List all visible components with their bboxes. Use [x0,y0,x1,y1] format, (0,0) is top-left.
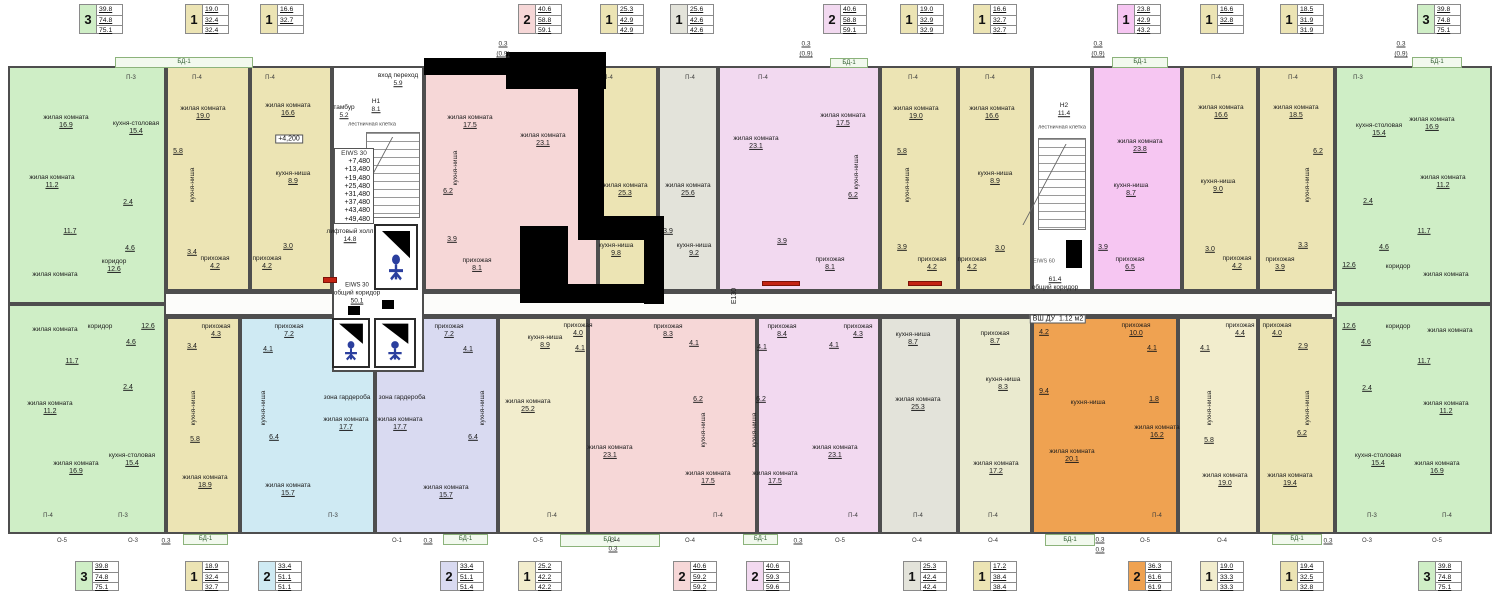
stat-values: 33.451.151.1 [275,562,301,590]
room-label: жилая комната25.6 [665,182,710,198]
stairs-left [366,132,420,218]
stat-area-value: 32.5 [1298,573,1323,584]
apartment-stat-card: 117.238.438.4 [973,561,1017,591]
stat-area-value: 32.7 [991,26,1016,36]
h1-label: H1 8.1 [371,98,380,114]
room-label: 4.1 [689,340,699,348]
room-label: 3.0 [283,243,293,251]
tambour-label: тамбур 5.2 [333,104,354,120]
room-label: 5.8 [1204,437,1214,445]
room-label: 9.4 [1039,388,1049,396]
room-label: жилая комната11.2 [27,400,72,416]
room-label: жилая комната17.5 [685,470,730,486]
elevation-level: +43,480 [338,207,370,215]
room-label: жилая комната15.7 [423,484,468,500]
stat-area-value: 74.8 [93,573,118,584]
dimension-label: (0.9) [1394,51,1407,58]
room-label: 3.9 [1098,244,1108,252]
room-label: 4.6 [125,245,135,253]
room-label: 3.4 [187,343,197,351]
dimension-label: 0.3 [793,538,802,545]
room-label: жилая комната [1423,271,1468,279]
apartment-stat-card: 240.659.359.6 [746,561,790,591]
stat-room-count: 1 [974,5,990,33]
staircase-right-label: лестничная клетка [1038,125,1086,132]
room-label: 3.0 [1205,246,1215,254]
room-label: жилая комната18.9 [182,474,227,490]
room-label: 3.9 [447,236,457,244]
facade-marker: П-4 [1442,513,1452,519]
room-label: 2.4 [1363,198,1373,206]
stat-room-count: 1 [186,5,202,33]
room-label: прихожая4.2 [918,256,947,272]
elevator-icon [374,318,416,368]
level-mark: +4,200 [275,135,303,144]
facade-marker: П-3 [118,513,128,519]
room-label: прихожая4.0 [1263,322,1292,338]
room-label: 12.6 [1342,323,1356,331]
stat-values: 40.658.859.1 [840,5,866,33]
room-label: жилая комната [32,271,77,279]
corridor-right-label: 61.4 общий коридор [1032,276,1079,292]
facade-marker: П-4 [913,513,923,519]
room-label: коридор [88,323,113,331]
stat-area-value: 32.9 [918,26,943,36]
apartment-3k-bottom-left [8,304,166,534]
facade-marker: О-5 [1432,538,1442,544]
facade-marker: П-4 [908,75,918,81]
apartment-stat-card: 339.874.875.1 [75,561,119,591]
stat-area-value: 43.2 [1135,26,1160,36]
stat-area-value: 75.1 [93,583,118,593]
stat-values: 36.361.661.9 [1145,562,1171,590]
stat-room-count: 3 [80,5,96,33]
room-label: жилая комната16.9 [1414,460,1459,476]
floor-plan-page: вход переход 5.9 тамбур 5.2 H1 8.1 лестн… [0,0,1500,597]
facade-marker: П-4 [1288,75,1298,81]
stat-area-value: 59.2 [691,573,716,584]
room-label: жилая комната16.9 [53,460,98,476]
apartment-1k-189-bottom [166,317,240,534]
apartment-stat-card: 116.632.732.7 [973,4,1017,34]
room-label: 6.2 [848,192,858,200]
facade-marker: О-3 [1362,538,1372,544]
stat-area-value: 31.9 [1298,16,1323,27]
stat-values: 39.874.875.1 [1434,5,1460,33]
stat-values: 19.432.532.8 [1297,562,1323,590]
stat-area-value: 59.1 [841,26,866,36]
corridor-red-mark [908,281,942,286]
balcony: БД-1 [1412,57,1462,68]
apartment-stat-card: 118.531.931.9 [1280,4,1324,34]
room-label: кухня-ниша8.3 [986,376,1021,392]
balcony: БД-1 [1112,57,1168,68]
room-label: жилая комната16.9 [43,114,88,130]
facade-marker: П-4 [43,513,53,519]
room-label: кухня-ниша [751,413,759,448]
dimension-label: 0.3 [1095,537,1104,544]
facade-marker: О-5 [835,538,845,544]
facade-marker: О-4 [685,538,695,544]
stat-area-value: 40.6 [536,5,561,16]
room-label: жилая комната17.2 [973,460,1018,476]
stat-room-count: 1 [671,5,687,33]
apartment-stat-card: 119.033.333.3 [1200,561,1244,591]
room-label: прихожая4.2 [958,256,987,272]
room-label: 2.9 [1298,343,1308,351]
dimension-label: 0.9 [1095,547,1104,554]
stat-room-count: 1 [261,5,277,33]
room-label: 3.0 [995,245,1005,253]
facade-marker: О-4 [912,538,922,544]
stat-area-value: 51.4 [458,583,483,593]
selected-apartment-highlight [520,284,664,303]
balcony: БД-1 [1045,534,1095,546]
facade-marker: П-3 [126,75,136,81]
facade-marker: П-4 [265,75,275,81]
stat-room-count: 2 [747,562,763,590]
staircase-left-label: лестничная клетка [348,122,396,129]
floor-plan: вход переход 5.9 тамбур 5.2 H1 8.1 лестн… [0,0,1500,597]
stat-values: 16.632.8 [1217,5,1243,33]
stat-area-value: 42.6 [688,26,713,36]
stat-area-value: 39.8 [93,562,118,573]
apartment-stat-card: 240.659.259.2 [673,561,717,591]
facade-marker: П-3 [1353,75,1363,81]
stat-area-value: 75.1 [97,26,122,36]
stat-room-count: 1 [1118,5,1134,33]
elevation-level: +31,480 [338,191,370,199]
room-label: прихожая8.3 [654,323,683,339]
room-label: прихожая4.2 [253,255,282,271]
stat-room-count: 1 [1201,562,1217,590]
stat-area-value: 42.4 [921,583,946,593]
room-label: жилая комната19.0 [180,105,225,121]
elevation-level: +37,480 [338,199,370,207]
dimension-label: (0.9) [1091,51,1104,58]
stat-room-count: 1 [974,562,990,590]
room-label: 11.7 [1417,358,1430,366]
room-label: жилая комната16.6 [265,102,310,118]
stat-area-value: 38.4 [991,573,1016,584]
facade-marker: П-3 [1367,513,1377,519]
stat-area-value: 32.4 [203,16,228,27]
stat-values: 18.932.432.7 [202,562,228,590]
room-label: жилая комната17.5 [752,470,797,486]
balcony: БД-1 [443,534,488,545]
dimension-label: 0.3 [1396,41,1405,48]
stairs-right [1038,138,1086,230]
room-label: 4.1 [575,345,585,353]
balcony: БД-1 [1272,534,1322,545]
stat-area-value: 58.8 [841,16,866,27]
stat-area-value: 19.0 [918,5,943,16]
balcony: БД-1 [183,534,228,545]
room-label: жилая комната25.3 [602,182,647,198]
vsh-du-label: ВШ ДУ 1.12 м2 [1030,315,1086,324]
stat-area-value: 75.1 [1436,583,1461,593]
room-label: жилая комната [1427,327,1472,335]
stat-area-value [278,26,303,33]
stat-area-value: 32.4 [203,573,228,584]
room-label: кухня-столовая15.4 [1355,452,1401,468]
room-label: 2.4 [1362,385,1372,393]
room-label: зона гардероба [379,394,426,402]
elevation-levels-title: EIWS 30 [338,150,370,158]
stat-values: 39.874.875.1 [92,562,118,590]
apartment-stat-card: 118.932.432.7 [185,561,229,591]
stat-area-value: 59.6 [764,583,789,593]
stat-area-value: 74.8 [1435,16,1460,27]
apartment-stat-card: 240.658.859.1 [823,4,867,34]
apartment-1k-194-bottom [1258,317,1335,534]
stat-room-count: 2 [1129,562,1145,590]
facade-marker: П-4 [848,513,858,519]
room-label: прихожая10.0 [1122,322,1151,338]
room-label: 2.4 [123,384,133,392]
apartment-stat-card: 233.451.151.4 [440,561,484,591]
e130-label: E130 [731,288,739,304]
stat-area-value: 16.6 [991,5,1016,16]
room-label: 4.6 [1379,244,1389,252]
stat-room-count: 2 [824,5,840,33]
stat-room-count: 2 [674,562,690,590]
room-label: жилая комната25.2 [505,398,550,414]
room-label: 4.1 [1200,345,1210,353]
elevation-level: +7,480 [338,158,370,166]
stat-area-value: 39.8 [1436,562,1461,573]
stat-values: 25.342.942.9 [617,5,643,33]
entry-passage-label: вход переход 5.9 [378,72,418,88]
stat-area-value: 51.1 [458,573,483,584]
stat-area-value: 19.0 [1218,562,1243,573]
room-label: прихожая3.9 [1266,256,1295,272]
stat-area-value: 40.6 [691,562,716,573]
apartment-3k-top-right [1335,66,1492,304]
room-label: 4.6 [1361,339,1371,347]
room-label: кухня-ниша8.9 [978,170,1013,186]
apartment-stat-card: 116.632.7 [260,4,304,34]
stat-area-value: 36.3 [1146,562,1171,573]
stat-area-value: 61.9 [1146,583,1171,593]
selected-apartment-highlight [348,306,360,315]
room-label: жилая комната17.5 [820,112,865,128]
room-label: коридор [1386,323,1411,331]
stat-area-value: 59.2 [691,583,716,593]
room-label: 4.1 [463,346,473,354]
facade-marker: О-5 [57,538,67,544]
room-label: жилая комната23.8 [1117,138,1162,154]
facade-marker: О-4 [988,538,998,544]
lift-hall-label: лифтовый холл 14.8 [327,228,374,244]
stat-area-value: 74.8 [1436,573,1461,584]
apartment-stat-card: 236.361.661.9 [1128,561,1172,591]
room-label: жилая комната11.2 [1423,400,1468,416]
room-label: кухня-ниша [1071,399,1106,407]
stat-area-value: 42.2 [536,583,561,593]
apartment-2k-violet-bottom [757,317,880,534]
room-label: 3.9 [777,238,787,246]
room-label: зона гардероба [324,394,371,402]
room-label: кухня-ниша [189,168,197,203]
stat-area-value: 32.8 [1298,583,1323,593]
facade-marker: О-5 [1140,538,1150,544]
room-label: кухня-ниша [479,391,487,426]
apartment-1k-253-bottom [880,317,958,534]
elevation-level: +19,480 [338,175,370,183]
apartment-stat-card: 240.658.859.1 [518,4,562,34]
room-label: 5.8 [897,148,907,156]
corridor-red-mark [762,281,800,286]
facade-marker: П-4 [547,513,557,519]
stat-area-value: 40.6 [764,562,789,573]
apartment-stat-card: 125.342.442.4 [903,561,947,591]
room-label: прихожая8.4 [768,323,797,339]
stat-area-value: 25.6 [688,5,713,16]
stat-area-value: 25.2 [536,562,561,573]
facade-marker: П-4 [192,75,202,81]
room-label: 1.8 [1149,396,1159,404]
stat-values: 33.451.151.4 [457,562,483,590]
room-label: 2.4 [123,199,133,207]
stat-room-count: 1 [186,562,202,590]
balcony: БД-1 [743,534,778,545]
facade-marker: П-4 [685,75,695,81]
room-label: прихожая4.2 [1223,255,1252,271]
stat-area-value: 16.6 [278,5,303,16]
stat-area-value: 33.3 [1218,583,1243,593]
balcony: БД-1 [115,57,253,68]
room-label: 11.7 [65,358,78,366]
dimension-label: 0.3 [423,538,432,545]
stat-values: 16.632.732.7 [990,5,1016,33]
room-label: 6.2 [443,188,453,196]
facade-marker: О-1 [392,538,402,544]
stat-values: 40.658.859.1 [535,5,561,33]
stat-values: 23.842.943.2 [1134,5,1160,33]
room-label: жилая комната11.2 [29,174,74,190]
stat-area-value: 19.4 [1298,562,1323,573]
room-label: жилая комната16.6 [969,105,1014,121]
room-label: жилая комната25.3 [895,396,940,412]
corridor-left-label: EIWS 30 общий коридор 50.1 [334,283,381,306]
stat-area-value: 59.3 [764,573,789,584]
stat-room-count: 1 [519,562,535,590]
room-label: 4.1 [757,344,767,352]
dimension-label: (0.9) [496,51,509,58]
room-label: 5.8 [173,148,183,156]
stat-area-value: 32.7 [991,16,1016,27]
room-label: прихожая4.4 [1226,322,1255,338]
stat-values: 39.874.875.1 [1435,562,1461,590]
room-label: 6.4 [468,434,478,442]
stat-values: 39.874.875.1 [96,5,122,33]
room-label: 6.4 [269,434,279,442]
apartment-2k-highlighted [424,66,598,291]
room-label: 3.9 [897,244,907,252]
stat-room-count: 2 [519,5,535,33]
stat-values: 19.032.432.4 [202,5,228,33]
stat-area-value: 33.3 [1218,573,1243,584]
room-label: 4.6 [126,339,136,347]
room-label: жилая комната20.1 [1049,448,1094,464]
stat-area-value: 17.2 [991,562,1016,573]
elevation-levels-box: EIWS 30 +7,480+13,480+19,480+25,480+31,4… [334,148,374,224]
room-label: кухня-ниша9.8 [599,242,634,258]
stat-area-value: 42.9 [1135,16,1160,27]
facade-marker: П-4 [985,75,995,81]
stat-area-value: 25.3 [921,562,946,573]
room-label: кухня-ниша8.9 [528,334,563,350]
room-label: прихожая7.2 [435,323,464,339]
room-label: кухня-ниша9.0 [1201,178,1236,194]
room-label: жилая комната23.1 [733,135,778,151]
stat-area-value: 32.7 [203,583,228,593]
stat-room-count: 3 [1419,562,1435,590]
room-label: жилая комната23.1 [520,132,565,148]
stat-area-value: 74.8 [97,16,122,27]
dimension-label: 0.3 [1093,41,1102,48]
room-label: жилая комната19.0 [1202,472,1247,488]
elevation-level: +25,480 [338,183,370,191]
room-label: прихожая8.1 [816,256,845,272]
stat-room-count: 3 [1418,5,1434,33]
stat-values: 19.033.333.3 [1217,562,1243,590]
stat-area-value: 39.8 [1435,5,1460,16]
stat-area-value: 38.4 [991,583,1016,593]
dimension-label: 0.3 [608,546,617,553]
room-label: жилая комната16.2 [1134,424,1179,440]
room-label: 6.2 [693,396,703,404]
stat-area-value: 33.4 [458,562,483,573]
stat-area-value: 58.8 [536,16,561,27]
room-label: прихожая4.3 [844,323,873,339]
room-label: жилая комната16.9 [1409,116,1454,132]
apartment-stat-card: 119.432.532.8 [1280,561,1324,591]
room-label: 6.2 [756,396,766,404]
room-label: 4.1 [1147,345,1157,353]
stat-area-value: 32.4 [203,26,228,36]
stat-values: 25.642.642.6 [687,5,713,33]
room-label: 3.9 [663,228,673,236]
stat-area-value: 51.1 [276,573,301,584]
stat-area-value: 31.9 [1298,26,1323,36]
room-label: прихожая6.5 [1116,256,1145,272]
apartment-stat-card: 119.032.432.4 [185,4,229,34]
room-label: жилая комната23.1 [587,444,632,460]
room-label: кухня-ниша [904,168,912,203]
stat-values: 40.659.359.6 [763,562,789,590]
stat-area-value: 32.7 [278,16,303,27]
room-label: жилая комната17.5 [447,114,492,130]
stat-area-value: 39.8 [97,5,122,16]
room-label: прихожая4.3 [202,323,231,339]
stat-area-value: 75.1 [1435,26,1460,36]
elevation-levels-list: +7,480+13,480+19,480+25,480+31,480+37,48… [338,158,370,224]
elevation-level: +13,480 [338,166,370,174]
stat-area-value: 42.9 [618,16,643,27]
room-label: кухня-ниша [190,391,198,426]
room-label: кухня-столовая15.4 [113,120,159,136]
facade-marker: П-4 [758,75,768,81]
room-label: 3.4 [187,249,197,257]
room-label: 12.6 [1342,262,1356,270]
apartment-stat-card: 119.032.932.9 [900,4,944,34]
room-label: жилая комната18.5 [1273,104,1318,120]
room-label: кухня-ниша [700,413,708,448]
balcony: БД-1 [830,58,868,68]
room-label: жилая комната19.0 [893,105,938,121]
